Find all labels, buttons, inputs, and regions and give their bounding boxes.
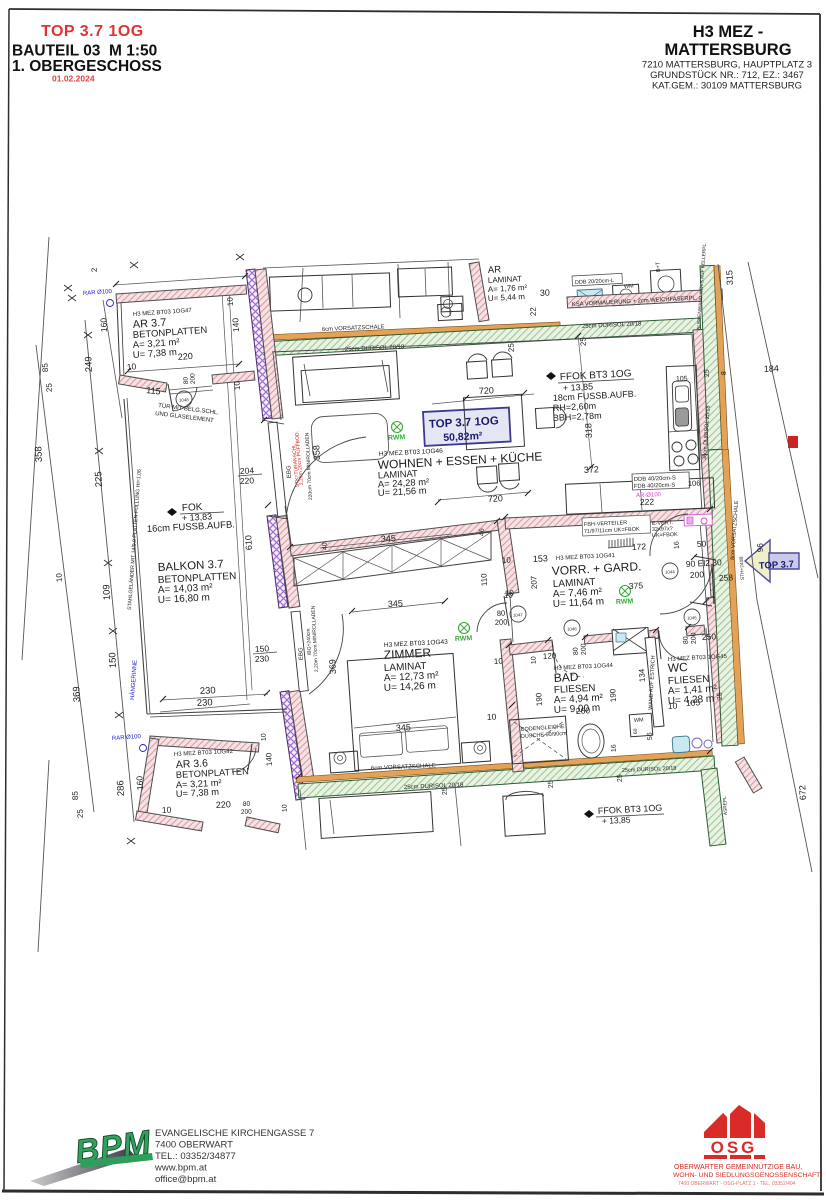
svg-text:190: 190	[534, 692, 544, 706]
svg-text:345: 345	[381, 533, 397, 544]
svg-text:10: 10	[487, 712, 497, 722]
svg-text:HÄNGERINNE: HÄNGERINNE	[129, 660, 139, 700]
svg-text:RWM: RWM	[388, 434, 406, 442]
svg-text:200: 200	[580, 643, 588, 655]
svg-text:WM: WM	[634, 717, 645, 724]
svg-text:372: 372	[584, 464, 600, 475]
svg-text:+ 13,85: + 13,85	[602, 815, 631, 826]
svg-text:286: 286	[115, 780, 127, 796]
svg-text:225: 225	[93, 471, 105, 487]
svg-text:50,82m²: 50,82m²	[443, 430, 483, 444]
svg-text:U= 7,38 m: U= 7,38 m	[132, 347, 177, 361]
svg-text:220: 220	[177, 351, 193, 362]
svg-text:U= 7,38 m: U= 7,38 m	[176, 787, 220, 799]
svg-text:160: 160	[98, 317, 109, 332]
svg-text:EBG: EBG	[298, 647, 305, 660]
svg-text:H3 MEZ -: H3 MEZ -	[693, 23, 764, 41]
svg-text:318: 318	[583, 423, 594, 439]
svg-text:134: 134	[637, 668, 647, 682]
svg-text:25: 25	[579, 336, 588, 346]
svg-text:STH+240B: STH+240B	[739, 556, 746, 580]
svg-text:25: 25	[442, 787, 449, 795]
svg-text:30: 30	[540, 287, 551, 298]
svg-text:10: 10	[531, 656, 538, 664]
svg-text:115: 115	[146, 385, 161, 396]
svg-text:MATTERSBURG: MATTERSBURG	[664, 41, 791, 59]
svg-text:1. OBERGESCHOSS: 1. OBERGESCHOSS	[12, 58, 162, 75]
svg-text:1045: 1045	[687, 615, 698, 621]
svg-text:10: 10	[162, 805, 172, 815]
svg-text:OSG: OSG	[711, 1138, 758, 1157]
svg-text:105: 105	[676, 376, 688, 383]
svg-text:258: 258	[719, 572, 734, 583]
svg-text:10: 10	[261, 733, 268, 741]
svg-text:220: 220	[216, 799, 232, 810]
svg-text:RAR Ø100: RAR Ø100	[83, 289, 113, 297]
svg-text:10: 10	[233, 380, 242, 390]
svg-text:172: 172	[632, 541, 647, 552]
svg-text:85: 85	[41, 362, 50, 372]
svg-text:80: 80	[573, 647, 580, 655]
svg-text:BAUTEIL 03 M 1:50: BAUTEIL 03 M 1:50	[12, 43, 157, 60]
svg-text:25: 25	[548, 780, 555, 788]
svg-text:BBH=2,78m: BBH=2,78m	[553, 410, 602, 423]
svg-text:7400 OBERWART - OSG-PLATZ 1 -: 7400 OBERWART - OSG-PLATZ 1 - TEL. 03352…	[678, 1181, 796, 1187]
svg-text:10: 10	[494, 657, 504, 666]
svg-text:60: 60	[633, 728, 639, 734]
svg-text:80: 80	[683, 636, 690, 644]
svg-text:249: 249	[83, 356, 95, 372]
svg-text:25: 25	[704, 369, 711, 377]
svg-text:U= 21,56 m: U= 21,56 m	[378, 484, 427, 498]
svg-text:25: 25	[617, 774, 624, 782]
svg-text:16: 16	[611, 744, 618, 752]
svg-text:WC: WC	[667, 660, 688, 675]
svg-text:369: 369	[71, 686, 83, 702]
svg-text:250: 250	[702, 631, 717, 642]
svg-text:2,20m 70cm MINIROLLADEN: 2,20m 70cm MINIROLLADEN	[311, 605, 320, 672]
svg-text:10: 10	[504, 591, 514, 600]
svg-text:150: 150	[107, 652, 119, 668]
svg-text:610: 610	[243, 535, 254, 551]
svg-text:105: 105	[686, 697, 701, 708]
svg-text:KAT.GEM.: 30109 MATTERSBURG: KAT.GEM.: 30109 MATTERSBURG	[652, 81, 802, 92]
svg-text:230: 230	[255, 653, 270, 664]
svg-text:TEL.: 03352/34877: TEL.: 03352/34877	[155, 1151, 236, 1162]
svg-text:358: 358	[311, 445, 322, 461]
svg-text:U= 16,80 m: U= 16,80 m	[158, 592, 210, 606]
svg-text:10: 10	[502, 556, 512, 565]
svg-text:AR: AR	[488, 264, 502, 276]
svg-text:260: 260	[576, 705, 591, 716]
svg-text:96: 96	[756, 542, 765, 552]
svg-text:TOP 3.7: TOP 3.7	[759, 559, 795, 572]
svg-text:01.02.2024: 01.02.2024	[52, 74, 95, 84]
svg-text:WOHN- UND SIEDLUNGSGENOSSENSCH: WOHN- UND SIEDLUNGSGENOSSENSCHAFT	[673, 1172, 820, 1179]
svg-text:1044: 1044	[665, 569, 676, 575]
svg-text:U= 14,26 m: U= 14,26 m	[384, 680, 436, 694]
svg-text:200: 200	[495, 617, 508, 627]
svg-text:EVANGELISCHE KIRCHENGASSE 7: EVANGELISCHE KIRCHENGASSE 7	[155, 1128, 314, 1139]
svg-text:U= 11,64 m: U= 11,64 m	[553, 596, 605, 610]
svg-text:109: 109	[101, 584, 113, 600]
svg-text:BAD: BAD	[553, 670, 579, 685]
svg-text:120: 120	[543, 651, 557, 661]
svg-text:RAR Ø100: RAR Ø100	[112, 734, 142, 742]
svg-text:140: 140	[264, 752, 274, 766]
svg-text:153: 153	[533, 553, 549, 564]
svg-text:200: 200	[189, 373, 197, 385]
svg-text:16: 16	[674, 541, 681, 549]
svg-text:ASREPL: ASREPL	[722, 796, 729, 816]
svg-text:1047: 1047	[513, 612, 524, 618]
svg-text:25: 25	[507, 342, 516, 352]
svg-text:375: 375	[629, 580, 644, 591]
svg-text:207: 207	[529, 575, 539, 589]
svg-text:ZIMMER: ZIMMER	[383, 646, 431, 662]
svg-text:25: 25	[76, 808, 85, 818]
svg-text:25: 25	[45, 382, 54, 392]
svg-text:10: 10	[668, 701, 678, 711]
svg-text:GRUNDSTÜCK NR.: 712, EZ.: 3467: GRUNDSTÜCK NR.: 712, EZ.: 3467	[650, 70, 804, 81]
svg-text:85: 85	[71, 790, 80, 800]
svg-text:U= 5,44 m: U= 5,44 m	[488, 292, 526, 303]
svg-text:RWM: RWM	[455, 635, 473, 643]
svg-text:8: 8	[721, 371, 728, 375]
svg-text:90 El2 30: 90 El2 30	[686, 557, 723, 569]
svg-text:STAHLGELÄNDER MIT 14/9,9 PLATT: STAHLGELÄNDER MIT 14/9,9 PLATTEN-FÜLLUNG…	[126, 469, 143, 610]
svg-text:315: 315	[724, 270, 735, 286]
svg-text:2: 2	[90, 267, 99, 272]
svg-text:22: 22	[529, 306, 538, 316]
svg-text:25: 25	[717, 692, 724, 700]
svg-text:110: 110	[479, 573, 489, 587]
svg-text:16cm FUSSB.AUFB.: 16cm FUSSB.AUFB.	[147, 519, 236, 535]
svg-text:106: 106	[688, 479, 701, 488]
svg-text:10: 10	[226, 296, 235, 306]
svg-text:7210 MATTERSBURG, HAUPTPLATZ 3: 7210 MATTERSBURG, HAUPTPLATZ 3	[642, 60, 812, 71]
svg-text:1048: 1048	[179, 397, 190, 403]
svg-text:358: 358	[33, 446, 45, 462]
svg-text:200: 200	[690, 569, 705, 580]
svg-text:200: 200	[690, 632, 698, 644]
svg-text:RWM: RWM	[616, 598, 634, 606]
svg-text:OBERWARTER GEMEINNÜTZIGE BAU,: OBERWARTER GEMEINNÜTZIGE BAU,	[674, 1163, 802, 1171]
svg-text:10: 10	[55, 572, 64, 582]
svg-text:10: 10	[282, 804, 289, 812]
svg-text:office@bpm.at: office@bpm.at	[155, 1174, 217, 1185]
svg-text:7400 OBERWART: 7400 OBERWART	[155, 1140, 233, 1151]
svg-text:230: 230	[200, 685, 216, 697]
svg-text:222: 222	[640, 497, 655, 507]
svg-text:140: 140	[230, 317, 241, 332]
svg-text:190: 190	[608, 688, 618, 702]
svg-text:46: 46	[479, 528, 486, 536]
svg-text:50: 50	[697, 539, 707, 549]
svg-text:200: 200	[241, 808, 253, 816]
svg-text:VORR. + GARD.: VORR. + GARD.	[551, 559, 641, 578]
svg-text:672: 672	[797, 785, 808, 801]
svg-text:B+T: B+T	[655, 261, 662, 272]
svg-text:160: 160	[134, 775, 145, 790]
svg-text:1046: 1046	[567, 626, 578, 632]
svg-text:80: 80	[243, 801, 251, 808]
svg-text:184: 184	[764, 363, 780, 374]
svg-text:EBG: EBG	[286, 465, 293, 478]
svg-text:DDB 20/20cm-L: DDB 20/20cm-L	[575, 278, 614, 286]
svg-text:720: 720	[479, 385, 495, 396]
svg-text:TOP 3.7 1OG: TOP 3.7 1OG	[41, 23, 144, 40]
svg-text:40: 40	[322, 542, 329, 550]
svg-text:220: 220	[240, 475, 255, 486]
svg-text:www.bpm.at: www.bpm.at	[154, 1163, 207, 1174]
